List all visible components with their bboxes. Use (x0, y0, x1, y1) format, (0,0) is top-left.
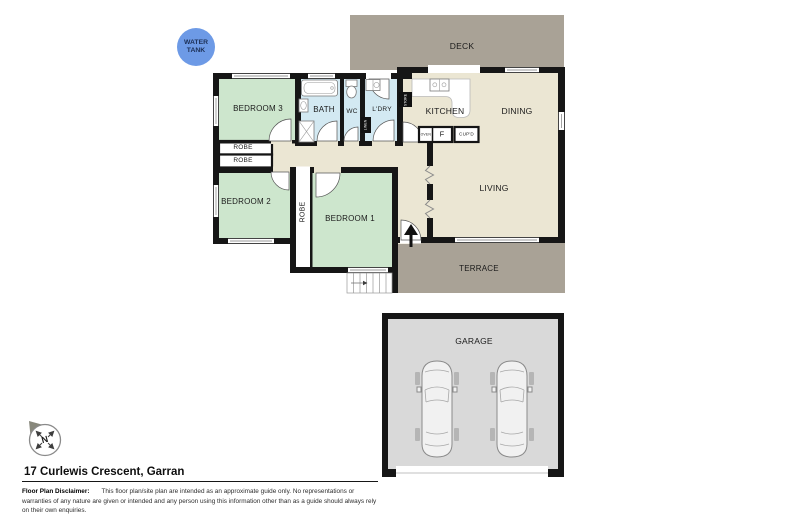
label-laundry: L'DRY (372, 107, 391, 114)
label-bath: BATH (313, 106, 335, 114)
label-bedroom-2: BEDROOM 2 (221, 198, 271, 206)
label-linen: LINEN (364, 120, 367, 131)
label-robe-1: ROBE (233, 145, 252, 152)
kitchen-sink (430, 79, 449, 91)
label-fridge: F (440, 131, 445, 139)
water-tank-marker: WATER TANK (177, 28, 215, 66)
label-dining: DINING (502, 107, 533, 116)
bathtub (302, 80, 338, 96)
label-deck: DECK (450, 42, 474, 51)
label-kitchen: KITCHEN (426, 107, 465, 116)
toilet (346, 80, 357, 98)
label-bedroom-1: BEDROOM 1 (325, 215, 375, 223)
floor-plan: WATER TANK DECK BEDROOM 3 BATH WC L'DRY … (0, 0, 790, 527)
vanity-basin (299, 99, 308, 112)
floor-plan-canvas (0, 0, 790, 527)
label-robe-2: ROBE (233, 158, 252, 165)
disclaimer: Floor Plan Disclaimer:This floor plan/si… (22, 487, 384, 516)
disclaimer-label: Floor Plan Disclaimer: (22, 488, 89, 495)
label-bedroom-3: BEDROOM 3 (233, 105, 283, 113)
label-wc: WC (346, 109, 357, 116)
label-garage: GARAGE (455, 337, 493, 346)
car (490, 361, 534, 457)
staircase (347, 273, 392, 293)
label-living: LIVING (479, 184, 508, 193)
laundry-tub (366, 80, 380, 91)
label-cupboard: CUP'D (459, 133, 474, 138)
label-store: STORE (404, 93, 407, 105)
property-address: 17 Curlewis Crescent, Garran (24, 466, 184, 478)
car (415, 361, 459, 457)
water-tank-label: WATER TANK (184, 39, 208, 56)
label-oven: OVEN (421, 133, 431, 136)
label-terrace: TERRACE (459, 265, 499, 273)
shower (299, 121, 314, 142)
label-robe-3: ROBE (300, 202, 307, 223)
divider-line (22, 481, 378, 482)
